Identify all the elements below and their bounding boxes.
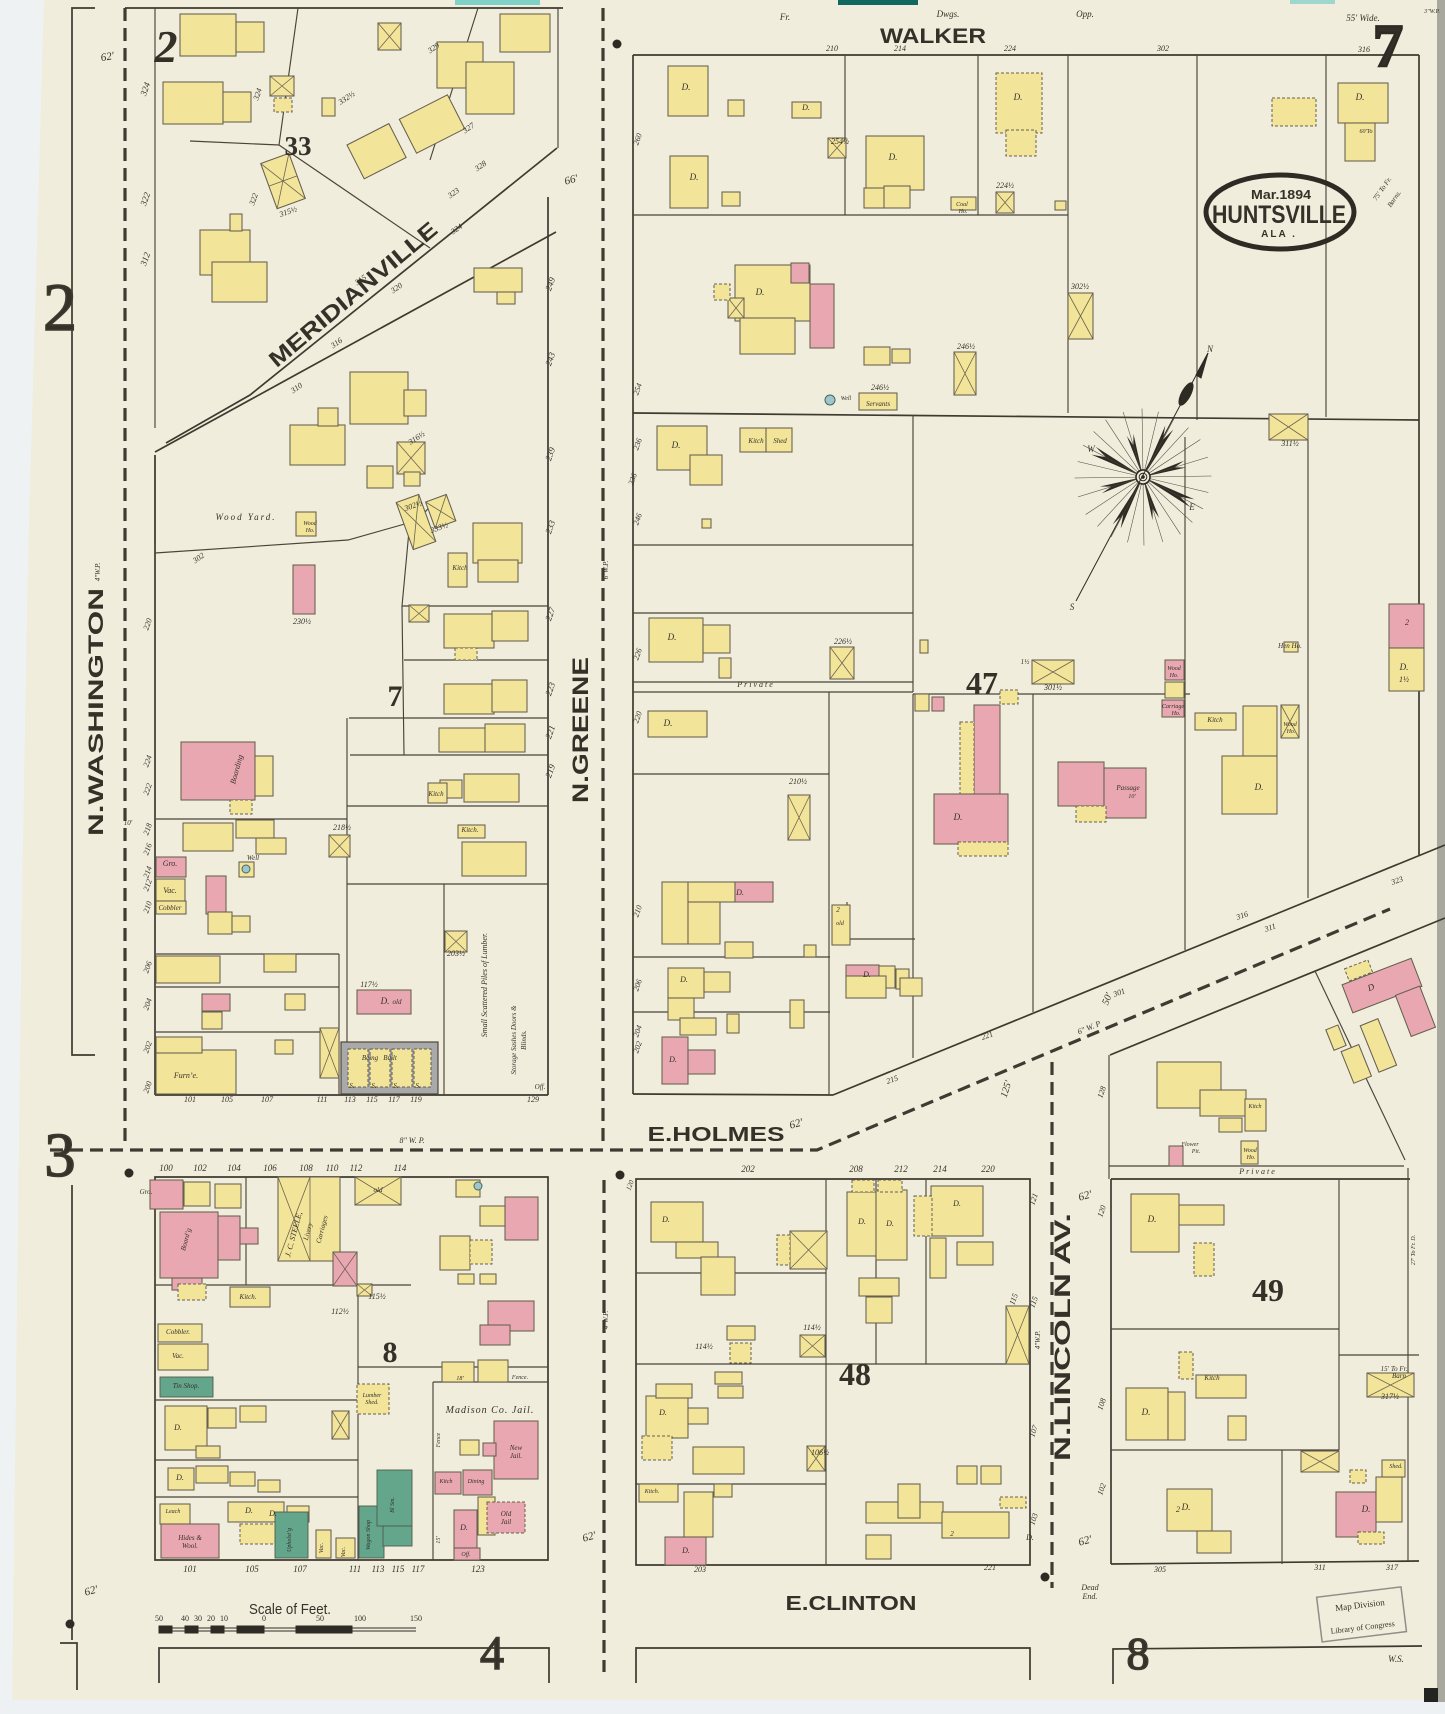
svg-text:49: 49 bbox=[1252, 1272, 1284, 1308]
svg-text:226½: 226½ bbox=[834, 637, 852, 646]
svg-text:202: 202 bbox=[741, 1164, 755, 1174]
svg-text:114½: 114½ bbox=[803, 1323, 820, 1332]
svg-text:Jail: Jail bbox=[501, 1518, 512, 1526]
svg-text:Jail.: Jail. bbox=[510, 1452, 522, 1460]
svg-text:114½: 114½ bbox=[695, 1342, 712, 1351]
svg-text:15′: 15′ bbox=[436, 1536, 442, 1544]
svg-text:E.CLINTON: E.CLINTON bbox=[786, 1593, 917, 1615]
svg-text:119: 119 bbox=[410, 1095, 421, 1104]
svg-text:302: 302 bbox=[1156, 44, 1169, 53]
svg-text:S.: S. bbox=[393, 1082, 399, 1090]
svg-text:D.: D. bbox=[755, 287, 765, 297]
svg-text:Storage Sashes Doors &: Storage Sashes Doors & bbox=[510, 1005, 518, 1075]
svg-text:220: 220 bbox=[981, 1164, 995, 1174]
svg-text:Kitch: Kitch bbox=[439, 1479, 453, 1485]
svg-text:114: 114 bbox=[394, 1163, 407, 1173]
svg-text:210½: 210½ bbox=[789, 777, 807, 786]
svg-text:D.: D. bbox=[658, 1408, 667, 1417]
svg-text:E.HOLMES: E.HOLMES bbox=[648, 1124, 785, 1146]
svg-text:Ho.: Ho. bbox=[305, 528, 315, 534]
svg-text:112: 112 bbox=[350, 1163, 363, 1173]
svg-text:D.: D. bbox=[244, 1506, 253, 1515]
svg-text:311½: 311½ bbox=[1280, 439, 1298, 448]
svg-text:150: 150 bbox=[410, 1614, 422, 1623]
svg-text:1½: 1½ bbox=[1021, 658, 1031, 666]
svg-text:Dining: Dining bbox=[467, 1479, 485, 1485]
svg-text:Vac.: Vac. bbox=[163, 886, 177, 895]
svg-text:212: 212 bbox=[894, 1164, 908, 1174]
svg-text:D.: D. bbox=[173, 1423, 182, 1432]
svg-text:D.: D. bbox=[459, 1523, 468, 1532]
svg-text:D.: D. bbox=[1254, 782, 1264, 792]
svg-text:Kitch: Kitch bbox=[1206, 716, 1223, 724]
svg-text:50: 50 bbox=[155, 1614, 163, 1623]
svg-text:4: 4 bbox=[480, 1627, 504, 1680]
svg-text:2: 2 bbox=[950, 1530, 954, 1538]
svg-text:47: 47 bbox=[966, 665, 998, 701]
svg-text:Vac.: Vac. bbox=[172, 1352, 184, 1360]
svg-text:D.: D. bbox=[857, 1217, 866, 1226]
svg-text:S.: S. bbox=[349, 1082, 355, 1090]
svg-text:D.: D. bbox=[663, 718, 673, 728]
svg-text:D.: D. bbox=[681, 1546, 690, 1555]
svg-text:2: 2 bbox=[154, 21, 178, 72]
svg-text:old: old bbox=[836, 921, 845, 927]
svg-text:Vac.: Vac. bbox=[341, 1547, 347, 1557]
svg-text:108: 108 bbox=[299, 1163, 313, 1173]
svg-text:Pit.: Pit. bbox=[1191, 1149, 1201, 1155]
svg-text:Gro.: Gro. bbox=[163, 859, 178, 868]
svg-text:104: 104 bbox=[227, 1163, 241, 1173]
svg-text:D.: D. bbox=[953, 812, 963, 822]
svg-text:Cobbler.: Cobbler. bbox=[166, 1328, 190, 1336]
svg-text:Barn: Barn bbox=[1392, 1372, 1407, 1380]
svg-text:117½: 117½ bbox=[360, 980, 377, 989]
svg-text:4″W.P.: 4″W.P. bbox=[602, 1311, 610, 1330]
svg-text:Shed: Shed bbox=[773, 437, 787, 445]
svg-text:Wood: Wood bbox=[1283, 722, 1297, 728]
svg-text:Kitch: Kitch bbox=[451, 564, 468, 572]
svg-text:D.: D. bbox=[952, 1199, 961, 1208]
svg-text:D.: D. bbox=[1025, 1533, 1034, 1542]
svg-text:221: 221 bbox=[984, 1563, 996, 1572]
svg-text:48: 48 bbox=[839, 1356, 871, 1392]
svg-text:Wood: Wood bbox=[1243, 1148, 1257, 1154]
svg-text:208: 208 bbox=[849, 1164, 863, 1174]
svg-text:D.: D. bbox=[1355, 92, 1365, 102]
svg-text:111: 111 bbox=[349, 1564, 361, 1574]
svg-text:Madison Co. Jail.: Madison Co. Jail. bbox=[445, 1405, 535, 1416]
svg-text:D.: D. bbox=[735, 888, 744, 897]
svg-text:N: N bbox=[1206, 344, 1214, 354]
svg-text:D.: D. bbox=[661, 1215, 670, 1224]
svg-text:8: 8 bbox=[383, 1336, 398, 1369]
svg-text:Shed.: Shed. bbox=[365, 1400, 378, 1406]
svg-text:305: 305 bbox=[1153, 1565, 1166, 1574]
svg-text:111: 111 bbox=[317, 1095, 328, 1104]
svg-text:107: 107 bbox=[293, 1564, 307, 1574]
svg-text:10: 10 bbox=[220, 1614, 228, 1623]
svg-text:Off.: Off. bbox=[461, 1551, 470, 1558]
svg-text:D.: D. bbox=[801, 103, 810, 112]
svg-text:D.: D. bbox=[668, 1055, 677, 1064]
svg-text:123: 123 bbox=[471, 1564, 485, 1574]
svg-text:Opp.: Opp. bbox=[1076, 9, 1094, 19]
svg-text:Small Scattered Piles of Lumbe: Small Scattered Piles of Lumber. bbox=[480, 933, 489, 1037]
svg-text:Flower: Flower bbox=[1180, 1142, 1199, 1148]
svg-text:Vac.: Vac. bbox=[319, 1543, 325, 1553]
svg-text:246½: 246½ bbox=[871, 383, 889, 392]
svg-text:E: E bbox=[1188, 502, 1195, 512]
svg-text:Gro.: Gro. bbox=[140, 1188, 153, 1196]
svg-text:107: 107 bbox=[261, 1095, 274, 1104]
svg-text:113: 113 bbox=[344, 1095, 355, 1104]
svg-text:Ho.: Ho. bbox=[958, 209, 968, 215]
svg-text:18′: 18′ bbox=[456, 1376, 464, 1382]
svg-text:Private: Private bbox=[736, 680, 775, 689]
svg-text:Dead: Dead bbox=[1080, 1583, 1099, 1592]
svg-text:N.WASHINGTON: N.WASHINGTON bbox=[85, 588, 108, 836]
svg-text:115½: 115½ bbox=[368, 1292, 385, 1301]
svg-text:102: 102 bbox=[193, 1163, 207, 1173]
svg-text:7: 7 bbox=[388, 680, 403, 713]
svg-text:D.: D. bbox=[175, 1473, 184, 1482]
svg-text:Lumber: Lumber bbox=[362, 1393, 382, 1399]
svg-text:105: 105 bbox=[245, 1564, 259, 1574]
svg-text:27′ To Fr. D.: 27′ To Fr. D. bbox=[1411, 1235, 1417, 1265]
svg-text:Fence.: Fence. bbox=[511, 1375, 528, 1381]
svg-text:HUNTSVILLE: HUNTSVILLE bbox=[1212, 201, 1346, 229]
svg-text:S: S bbox=[1070, 602, 1075, 612]
svg-text:D.: D. bbox=[1013, 92, 1023, 102]
svg-text:55′ Wide.: 55′ Wide. bbox=[1346, 13, 1379, 23]
svg-text:302½: 302½ bbox=[1070, 282, 1089, 291]
svg-text:Wood Yard.: Wood Yard. bbox=[215, 512, 276, 522]
svg-text:Wood: Wood bbox=[303, 521, 317, 527]
svg-text:115: 115 bbox=[366, 1095, 377, 1104]
svg-text:D.: D. bbox=[689, 172, 699, 182]
svg-text:8: 8 bbox=[1127, 1628, 1150, 1679]
svg-text:D.: D. bbox=[1141, 1407, 1151, 1417]
svg-text:311: 311 bbox=[1313, 1563, 1325, 1572]
svg-text:30: 30 bbox=[194, 1614, 202, 1623]
svg-text:112½: 112½ bbox=[331, 1307, 348, 1316]
svg-text:101: 101 bbox=[183, 1564, 197, 1574]
svg-text:D.: D. bbox=[1181, 1502, 1191, 1512]
svg-text:60′To: 60′To bbox=[1359, 129, 1372, 135]
svg-text:Bl Sm.: Bl Sm. bbox=[390, 1497, 396, 1513]
svg-text:1½: 1½ bbox=[1399, 675, 1409, 684]
svg-text:316: 316 bbox=[1357, 45, 1370, 54]
svg-text:D.: D. bbox=[1361, 1504, 1371, 1514]
svg-text:D.: D. bbox=[1399, 662, 1409, 672]
svg-text:105: 105 bbox=[221, 1095, 233, 1104]
svg-text:Dwgs.: Dwgs. bbox=[936, 9, 960, 19]
svg-text:W.S.: W.S. bbox=[1388, 1654, 1404, 1664]
svg-text:Well: Well bbox=[247, 854, 259, 862]
svg-text:Kitch.: Kitch. bbox=[644, 1489, 660, 1495]
svg-text:10′: 10′ bbox=[124, 819, 133, 827]
svg-text:old: old bbox=[393, 998, 402, 1006]
svg-text:62′: 62′ bbox=[100, 50, 116, 64]
svg-text:106½: 106½ bbox=[811, 1448, 829, 1457]
svg-text:Fr.: Fr. bbox=[779, 12, 790, 22]
svg-text:D.: D. bbox=[667, 632, 677, 642]
svg-text:D.: D. bbox=[268, 1509, 277, 1518]
svg-text:224½: 224½ bbox=[996, 181, 1014, 190]
svg-text:Carriage: Carriage bbox=[1162, 704, 1184, 710]
svg-text:203½: 203½ bbox=[447, 949, 465, 958]
svg-text:Leach: Leach bbox=[165, 1509, 181, 1515]
svg-text:Coal: Coal bbox=[956, 202, 968, 208]
svg-text:117: 117 bbox=[412, 1564, 425, 1574]
svg-text:Cobbler: Cobbler bbox=[159, 904, 182, 912]
svg-text:Kitch: Kitch bbox=[747, 437, 764, 445]
svg-text:214: 214 bbox=[894, 44, 906, 53]
svg-text:Wool.: Wool. bbox=[182, 1542, 198, 1550]
svg-text:End.: End. bbox=[1082, 1592, 1098, 1601]
svg-text:Ho.: Ho. bbox=[1171, 711, 1181, 717]
svg-text:3: 3 bbox=[45, 1122, 76, 1190]
svg-text:317½: 317½ bbox=[1380, 1392, 1399, 1401]
svg-text:Ho.: Ho. bbox=[1246, 1155, 1256, 1161]
svg-text:D.: D. bbox=[671, 440, 681, 450]
svg-text:117: 117 bbox=[388, 1095, 400, 1104]
svg-text:50: 50 bbox=[316, 1614, 324, 1623]
svg-text:D.: D. bbox=[1147, 1214, 1157, 1224]
svg-text:Built: Built bbox=[383, 1054, 398, 1062]
svg-text:100: 100 bbox=[354, 1614, 366, 1623]
svg-text:101: 101 bbox=[184, 1095, 196, 1104]
svg-text:115: 115 bbox=[392, 1564, 405, 1574]
svg-text:Ho.: Ho. bbox=[1286, 729, 1296, 735]
svg-text:Off.: Off. bbox=[535, 1083, 546, 1091]
svg-text:Wagon Shop: Wagon Shop bbox=[366, 1520, 372, 1550]
svg-text:D.: D. bbox=[681, 82, 691, 92]
svg-text:S.: S. bbox=[415, 1082, 421, 1090]
svg-text:Wood: Wood bbox=[1167, 666, 1181, 672]
svg-text:203: 203 bbox=[694, 1565, 706, 1574]
svg-text:210: 210 bbox=[826, 44, 838, 53]
svg-text:D.: D. bbox=[380, 996, 390, 1006]
svg-text:Well: Well bbox=[841, 396, 852, 402]
svg-text:Tin Shop.: Tin Shop. bbox=[173, 1382, 200, 1390]
svg-text:N.LINCOLN AV.: N.LINCOLN AV. bbox=[1050, 1213, 1075, 1461]
svg-text:3″W.P.: 3″W.P. bbox=[1423, 9, 1440, 15]
svg-text:33: 33 bbox=[285, 131, 312, 161]
svg-text:254½: 254½ bbox=[831, 137, 849, 146]
svg-text:106: 106 bbox=[263, 1163, 277, 1173]
svg-text:Being: Being bbox=[362, 1054, 379, 1062]
svg-text:Blinds.: Blinds. bbox=[520, 1030, 528, 1050]
svg-text:New: New bbox=[509, 1444, 523, 1452]
svg-text:40: 40 bbox=[181, 1614, 189, 1623]
svg-text:113: 113 bbox=[372, 1564, 385, 1574]
svg-text:4″W.P.: 4″W.P. bbox=[1034, 1331, 1042, 1350]
svg-text:230½: 230½ bbox=[293, 617, 311, 626]
svg-text:Fence: Fence bbox=[436, 1432, 442, 1448]
svg-text:2: 2 bbox=[1176, 1505, 1180, 1514]
svg-text:Passage: Passage bbox=[1115, 784, 1139, 792]
svg-text:Mar.1894: Mar.1894 bbox=[1251, 187, 1312, 202]
svg-text:129: 129 bbox=[527, 1095, 539, 1104]
svg-text:Private: Private bbox=[1238, 1167, 1277, 1176]
svg-text:317: 317 bbox=[1385, 1563, 1399, 1572]
svg-text:2: 2 bbox=[1405, 618, 1409, 627]
svg-text:Kitch.: Kitch. bbox=[461, 826, 479, 834]
svg-text:4″W.P.: 4″W.P. bbox=[94, 563, 102, 582]
svg-text:D.: D. bbox=[679, 975, 688, 984]
svg-text:N.GREENE: N.GREENE bbox=[568, 657, 593, 803]
svg-text:218½: 218½ bbox=[333, 823, 351, 832]
svg-text:Shed.: Shed. bbox=[1389, 1464, 1402, 1470]
svg-text:Kitch: Kitch bbox=[1248, 1104, 1262, 1110]
svg-text:Upholst’g: Upholst’g bbox=[287, 1528, 293, 1552]
svg-text:224: 224 bbox=[1004, 44, 1016, 53]
svg-text:0: 0 bbox=[262, 1614, 266, 1623]
svg-text:Old: Old bbox=[501, 1510, 512, 1518]
svg-text:Kitch: Kitch bbox=[1203, 1374, 1220, 1382]
svg-text:2: 2 bbox=[836, 906, 840, 914]
svg-text:S.: S. bbox=[371, 1082, 377, 1090]
svg-text:Hen Ho.: Hen Ho. bbox=[1277, 642, 1302, 650]
svg-text:ALA .: ALA . bbox=[1261, 229, 1297, 240]
svg-text:20: 20 bbox=[207, 1614, 215, 1623]
svg-text:Kitch: Kitch bbox=[427, 790, 444, 798]
svg-text:2: 2 bbox=[43, 269, 77, 345]
svg-text:6″W.P.: 6″W.P. bbox=[602, 561, 610, 580]
svg-text:Furn’e.: Furn’e. bbox=[173, 1071, 198, 1080]
svg-text:Kitch.: Kitch. bbox=[239, 1293, 257, 1301]
svg-text:301½: 301½ bbox=[1043, 683, 1062, 692]
svg-text:246½: 246½ bbox=[957, 342, 975, 351]
svg-text:110: 110 bbox=[326, 1163, 339, 1173]
svg-text:Servants: Servants bbox=[866, 400, 890, 408]
svg-text:Hides &: Hides & bbox=[177, 1534, 202, 1542]
svg-text:D.: D. bbox=[888, 152, 898, 162]
svg-text:214: 214 bbox=[933, 1164, 947, 1174]
svg-text:8″ W. P.: 8″ W. P. bbox=[399, 1136, 424, 1145]
svg-text:old: old bbox=[374, 1186, 383, 1194]
svg-text:D.: D. bbox=[885, 1219, 894, 1228]
svg-text:100: 100 bbox=[159, 1163, 173, 1173]
svg-text:10′: 10′ bbox=[1128, 794, 1136, 800]
svg-text:Ho.: Ho. bbox=[1169, 673, 1179, 679]
svg-text:D.: D. bbox=[862, 970, 871, 979]
